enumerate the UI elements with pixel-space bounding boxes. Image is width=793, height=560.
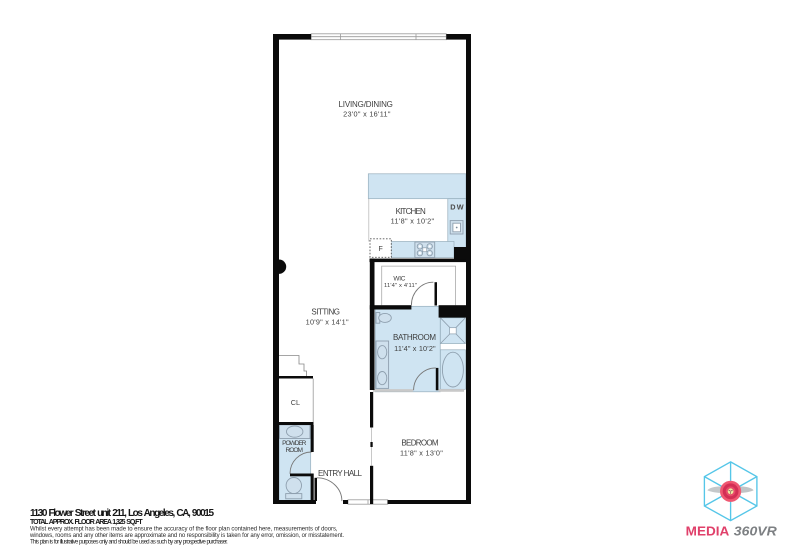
svg-text:CL: CL <box>291 398 300 407</box>
svg-text:This plan is for illustrative: This plan is for illustrative purposes o… <box>30 539 228 545</box>
svg-text:BEDROOM: BEDROOM <box>401 439 439 448</box>
svg-text:1130 Flower Street unit 211, L: 1130 Flower Street unit 211, Los Angeles… <box>30 508 214 519</box>
svg-text:DW: DW <box>450 202 464 211</box>
svg-text:11'8" x 10'2": 11'8" x 10'2" <box>391 216 435 225</box>
svg-text:ROOM: ROOM <box>286 447 304 454</box>
svg-text:Whilst every attempt has been: Whilst every attempt has been made to en… <box>30 527 338 533</box>
svg-text:10'9" x 14'1": 10'9" x 14'1" <box>306 317 349 326</box>
svg-text:11'8" x 13'0": 11'8" x 13'0" <box>400 449 443 458</box>
svg-text:SITTING: SITTING <box>311 307 340 316</box>
svg-text:BATHROOM: BATHROOM <box>393 333 436 342</box>
svg-text:23'0" x 16'11": 23'0" x 16'11" <box>343 110 391 119</box>
svg-text:360VR: 360VR <box>734 523 778 538</box>
svg-text:ENTRY HALL: ENTRY HALL <box>318 469 362 478</box>
svg-text:windows, rooms and any other i: windows, rooms and any other items are a… <box>29 533 344 539</box>
svg-text:MEDIA: MEDIA <box>686 523 730 538</box>
svg-text:POWDER: POWDER <box>282 440 307 447</box>
svg-text:LIVING/DINING: LIVING/DINING <box>339 100 393 109</box>
svg-text:WIC: WIC <box>393 276 405 283</box>
svg-text:11'4" x 10'2": 11'4" x 10'2" <box>394 344 436 353</box>
svg-text:11'4" x 4'11": 11'4" x 4'11" <box>384 283 417 289</box>
svg-text:F: F <box>378 246 382 253</box>
svg-text:KITCHEN: KITCHEN <box>396 207 426 216</box>
svg-text:TOTAL APPROX. FLOOR AREA 1,325: TOTAL APPROX. FLOOR AREA 1,325 SQ.FT <box>30 519 143 526</box>
